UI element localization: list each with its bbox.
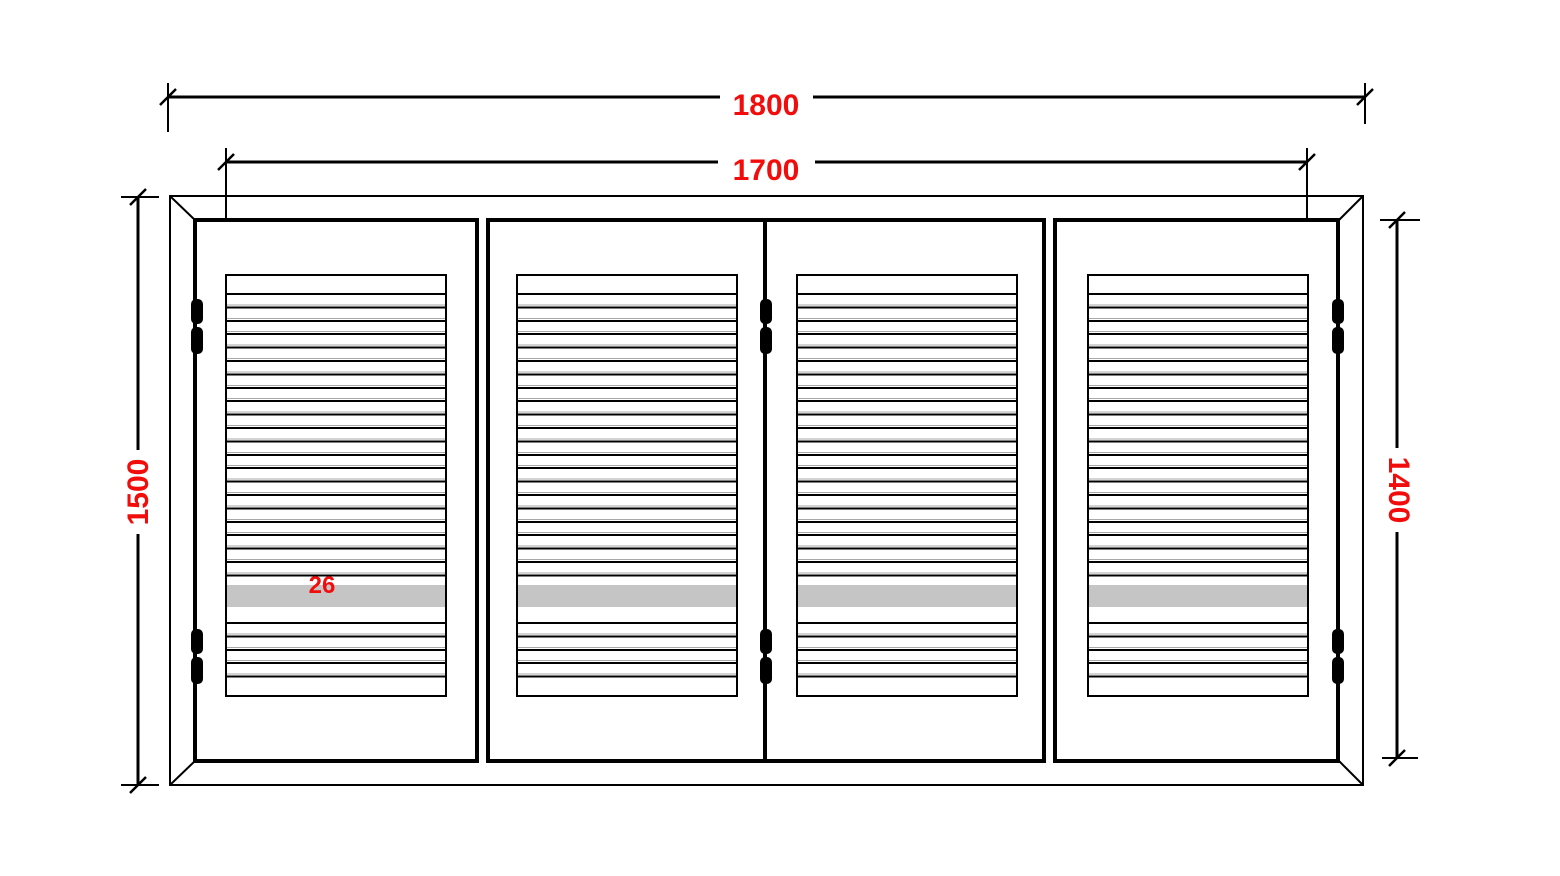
louver-slats-lower-2: [518, 622, 736, 680]
hinge-knuckle: [191, 299, 203, 324]
dim-label-overall-width: 1800: [733, 91, 800, 121]
highlighted-slat-band-4: [1089, 585, 1307, 607]
louver-slats-upper-4: [1089, 293, 1307, 578]
hinge-knuckle: [191, 327, 203, 354]
louver-zone-2: [516, 274, 738, 697]
hinge-center-lower: [760, 629, 772, 713]
highlighted-slat-band-2: [518, 585, 736, 607]
hinge-knuckle: [1332, 327, 1344, 354]
shutter-leaf-2: [486, 218, 769, 763]
hinge-right-lower: [1332, 629, 1344, 713]
hinge-right-upper: [1332, 299, 1344, 383]
louver-zone-1: [225, 274, 447, 697]
hinge-knuckle: [191, 657, 203, 684]
dim-label-leaf-span-width: 1700: [733, 156, 800, 186]
hinge-knuckle: [760, 327, 772, 354]
hinge-knuckle: [760, 629, 772, 654]
hinge-left-upper: [191, 299, 203, 383]
louver-slats-upper-3: [798, 293, 1016, 578]
louver-slats-upper-1: [227, 293, 445, 578]
miter-bottom-right: [1338, 760, 1362, 784]
dim-label-overall-height: 1500: [124, 459, 154, 526]
louver-slats-upper-2: [518, 293, 736, 578]
hinge-knuckle: [1332, 657, 1344, 684]
louver-zone-4: [1087, 274, 1309, 697]
dim-label-leaf-height: 1400: [1383, 457, 1413, 524]
shutter-leaf-4: [1053, 218, 1340, 763]
shutter-leaf-3: [763, 218, 1046, 763]
hinge-knuckle: [760, 657, 772, 684]
hinge-center-upper: [760, 299, 772, 383]
hinge-knuckle: [1332, 629, 1344, 654]
hinge-knuckle: [1332, 299, 1344, 324]
louver-slats-lower-1: [227, 622, 445, 680]
shutter-leaf-1: [193, 218, 479, 763]
highlighted-slat-band-1: [227, 585, 445, 607]
louver-slats-lower-3: [798, 622, 1016, 680]
miter-top-right: [1338, 197, 1362, 221]
hinge-left-lower: [191, 629, 203, 713]
highlighted-slat-band-3: [798, 585, 1016, 607]
shutter-elevation-drawing: 1800 1700 1500 1400 26: [0, 0, 1560, 876]
louver-slats-lower-4: [1089, 622, 1307, 680]
dim-label-slat-thickness: 26: [309, 574, 336, 598]
miter-bottom-left: [171, 760, 196, 784]
louver-zone-3: [796, 274, 1018, 697]
hinge-knuckle: [760, 299, 772, 324]
hinge-knuckle: [191, 629, 203, 654]
